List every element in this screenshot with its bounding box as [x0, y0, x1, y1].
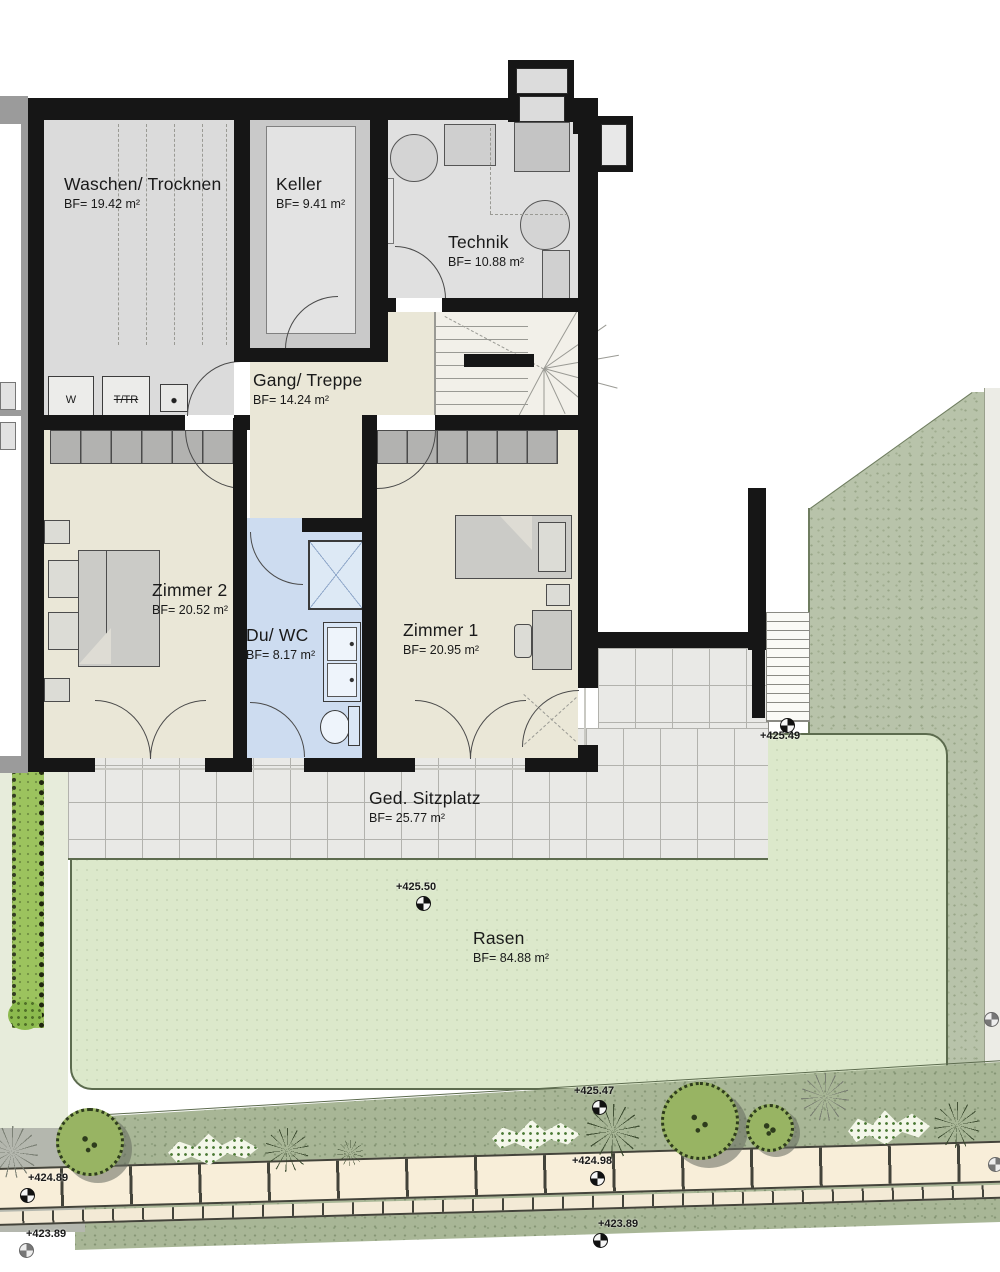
neighbour-wall	[21, 96, 28, 772]
shelf	[44, 520, 70, 544]
elevation-marker-icon	[592, 1100, 607, 1115]
shower	[308, 540, 364, 610]
floor-plan-canvas: W T/TR	[0, 0, 1000, 1272]
neighbour-wall	[0, 756, 28, 773]
retaining-wall	[752, 648, 765, 718]
retaining-wall	[748, 488, 766, 650]
wall-main-horizontal	[435, 415, 598, 430]
room-label-technik: Technik BF= 10.88 m²	[448, 232, 524, 269]
dryer-label: T/TR	[114, 394, 138, 406]
sink	[327, 663, 357, 697]
elevation-label: +423.89	[26, 1228, 66, 1240]
pillow	[538, 522, 566, 572]
wall-bottom	[525, 758, 598, 772]
room-area: BF= 20.52 m²	[152, 603, 228, 617]
tree-crown	[746, 1104, 794, 1152]
room-area: BF= 10.88 m²	[448, 255, 524, 269]
grass-plant-icon	[337, 1140, 363, 1166]
room-label-waschen: Waschen/ Trocknen BF= 19.42 m²	[64, 174, 221, 211]
room-label-rasen: Rasen BF= 84.88 m²	[473, 928, 549, 965]
room-label-duwc: Du/ WC BF= 8.17 m²	[246, 625, 315, 662]
equipment-box	[514, 122, 570, 172]
wall-technik-bottom	[386, 298, 396, 312]
tree-icon	[746, 1104, 794, 1152]
neighbour-wall	[0, 96, 22, 124]
hedge-row	[12, 770, 44, 1028]
room-area: BF= 84.88 m²	[473, 951, 549, 965]
room-waschen-floor	[44, 120, 234, 415]
nightstand	[48, 612, 80, 650]
stair-winder-line	[544, 369, 545, 417]
wall-technik-bottom	[442, 298, 598, 312]
drying-line	[202, 124, 203, 345]
stairwell-divider	[434, 312, 436, 415]
elevation-label: +425.49	[760, 730, 800, 742]
light-well-shaft	[519, 96, 565, 122]
wall-corridor-right	[362, 418, 377, 758]
room-area: BF= 8.17 m²	[246, 648, 315, 662]
room-area: BF= 19.42 m²	[64, 197, 221, 211]
wall-duwc-top	[302, 518, 362, 532]
sitzplatz-tiles-side	[598, 648, 769, 738]
wall-divider	[234, 98, 250, 361]
threshold-line	[584, 688, 586, 745]
grass-plant-icon	[934, 1102, 980, 1148]
room-name: Zimmer 2	[152, 580, 228, 601]
drying-line	[118, 124, 119, 345]
room-name: Ged. Sitzplatz	[369, 788, 481, 809]
room-gang-floor	[386, 312, 434, 362]
room-name: Keller	[276, 174, 345, 195]
room-area: BF= 20.95 m²	[403, 643, 479, 657]
nightstand	[48, 560, 80, 598]
elevation-marker-icon	[984, 1012, 999, 1027]
room-name: Rasen	[473, 928, 549, 949]
technik-guide-line	[490, 128, 491, 214]
exterior-stair	[766, 612, 810, 722]
room-area: BF= 9.41 m²	[276, 197, 345, 211]
corridor-floor	[250, 415, 362, 518]
wall-bottom	[205, 758, 252, 772]
tree-crown	[56, 1108, 124, 1176]
drying-line	[146, 124, 147, 345]
room-area: BF= 14.24 m²	[253, 393, 362, 407]
grass-plant-icon	[265, 1128, 309, 1172]
room-area: BF= 25.77 m²	[369, 811, 481, 825]
wall-right	[578, 98, 598, 688]
elevation-marker-icon	[593, 1233, 608, 1248]
room-name: Zimmer 1	[403, 620, 479, 641]
elevation-marker-icon	[20, 1188, 35, 1203]
bed-fold	[79, 628, 111, 664]
toilet-tank	[348, 706, 360, 746]
room-name: Technik	[448, 232, 524, 253]
elevation-label: +423.89	[598, 1218, 638, 1230]
neighbour-wall	[0, 410, 21, 416]
equipment-box	[444, 124, 496, 166]
room-label-sitzplatz: Ged. Sitzplatz BF= 25.77 m²	[369, 788, 481, 825]
room-label-zimmer2: Zimmer 2 BF= 20.52 m²	[152, 580, 228, 617]
floor-drain	[160, 384, 188, 412]
drying-line	[226, 124, 227, 345]
shelf	[546, 584, 570, 606]
wall-bottom	[304, 758, 415, 772]
neighbour-fixture	[0, 382, 16, 410]
elevation-label: +424.98	[572, 1155, 612, 1167]
wall-divider	[370, 98, 388, 362]
shelf	[44, 678, 70, 702]
hedge-end-bush	[8, 1000, 42, 1030]
elevation-marker-icon	[416, 896, 431, 911]
elevation-marker-icon	[590, 1171, 605, 1186]
equipment-box	[542, 250, 570, 300]
desk	[532, 610, 572, 670]
elevation-label: +425.50	[396, 881, 436, 893]
wall-corridor-left	[233, 418, 247, 758]
neighbour-fixture	[0, 422, 16, 450]
tree-icon	[56, 1108, 124, 1176]
right-boundary-strip	[984, 388, 1000, 1110]
tree-icon	[661, 1082, 739, 1160]
drying-line	[174, 124, 175, 345]
room-label-gang: Gang/ Treppe BF= 14.24 m²	[253, 370, 362, 407]
retaining-wall	[598, 632, 766, 648]
wall-bottom	[28, 758, 95, 772]
wall-main-horizontal	[28, 415, 185, 430]
elevation-marker-icon	[988, 1157, 1000, 1172]
technik-guide-line	[490, 214, 568, 215]
light-well-shaft	[601, 124, 627, 166]
stair-landing-edge	[464, 354, 534, 367]
light-well-shaft	[516, 68, 568, 94]
elevation-marker-icon	[780, 718, 795, 733]
room-label-keller: Keller BF= 9.41 m²	[276, 174, 345, 211]
room-name: Du/ WC	[246, 625, 315, 646]
room-name: Waschen/ Trocknen	[64, 174, 221, 195]
elevation-label: +424.89	[28, 1172, 68, 1184]
toilet	[320, 710, 350, 744]
tree-crown	[661, 1082, 739, 1160]
grass-plant-icon	[801, 1073, 849, 1121]
sink	[327, 627, 357, 661]
tank-circle	[520, 200, 570, 250]
washer-label: W	[66, 394, 76, 406]
bed-fold	[500, 516, 532, 550]
elevation-marker-icon	[19, 1243, 34, 1258]
room-name: Gang/ Treppe	[253, 370, 362, 391]
chair	[514, 624, 532, 658]
tank-circle	[390, 134, 438, 182]
wall-keller-bottom	[234, 348, 386, 362]
elevation-label: +425.47	[574, 1085, 614, 1097]
room-label-zimmer1: Zimmer 1 BF= 20.95 m²	[403, 620, 479, 657]
wall-left	[28, 98, 44, 772]
